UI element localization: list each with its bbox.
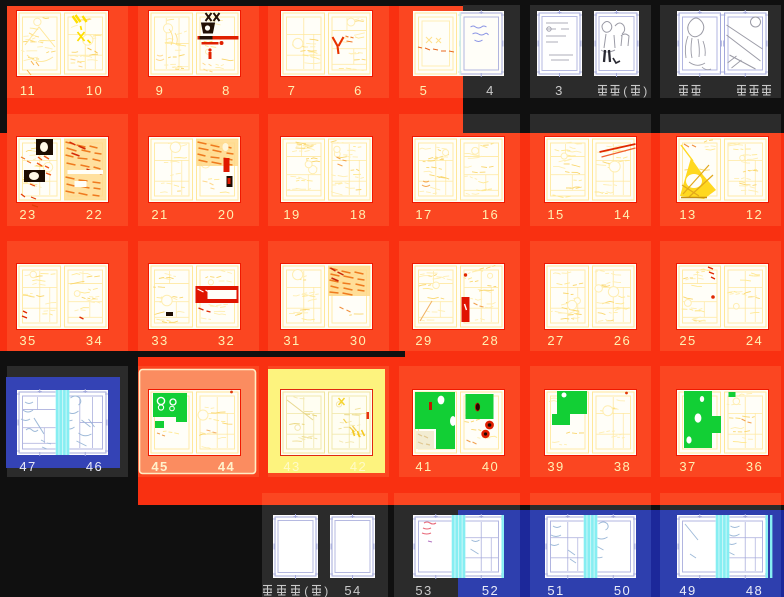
svg-text:6: 6	[354, 83, 363, 98]
svg-text:49: 49	[679, 583, 696, 597]
svg-text:21: 21	[151, 207, 168, 222]
svg-text:47: 47	[19, 459, 36, 474]
svg-text:11: 11	[20, 83, 36, 98]
svg-text:51: 51	[547, 583, 564, 597]
svg-text:50: 50	[614, 583, 631, 597]
svg-text:45: 45	[151, 459, 168, 474]
svg-text:24: 24	[746, 333, 763, 348]
svg-text:44: 44	[218, 459, 235, 474]
svg-text:41: 41	[415, 459, 432, 474]
svg-text:13: 13	[679, 207, 696, 222]
svg-text:7: 7	[288, 83, 297, 98]
svg-text:27: 27	[547, 333, 564, 348]
svg-text:33: 33	[151, 333, 168, 348]
svg-text:19: 19	[283, 207, 300, 222]
svg-text:26: 26	[614, 333, 631, 348]
svg-text:20: 20	[218, 207, 235, 222]
svg-text:38: 38	[614, 459, 631, 474]
svg-text:5: 5	[420, 83, 429, 98]
svg-text:22: 22	[86, 207, 103, 222]
svg-text:): )	[643, 84, 648, 98]
svg-text:28: 28	[482, 333, 499, 348]
svg-text:17: 17	[415, 207, 432, 222]
svg-text:30: 30	[350, 333, 367, 348]
svg-text:48: 48	[746, 583, 763, 597]
svg-text:53: 53	[415, 583, 432, 597]
svg-text:34: 34	[86, 333, 103, 348]
svg-text:37: 37	[679, 459, 696, 474]
svg-text:25: 25	[679, 333, 696, 348]
svg-text:39: 39	[547, 459, 564, 474]
svg-text:32: 32	[218, 333, 235, 348]
svg-text:52: 52	[482, 583, 499, 597]
svg-text:43: 43	[283, 459, 300, 474]
svg-text:42: 42	[350, 459, 367, 474]
svg-text:46: 46	[86, 459, 103, 474]
svg-text:(: (	[304, 584, 309, 597]
svg-text:35: 35	[19, 333, 36, 348]
svg-text:40: 40	[482, 459, 499, 474]
svg-text:29: 29	[415, 333, 432, 348]
svg-text:36: 36	[746, 459, 763, 474]
svg-text:16: 16	[482, 207, 499, 222]
svg-text:54: 54	[344, 583, 361, 597]
svg-text:18: 18	[350, 207, 367, 222]
svg-text:(: (	[623, 84, 628, 98]
svg-text:9: 9	[156, 83, 165, 98]
svg-text:4: 4	[486, 83, 495, 98]
svg-text:8: 8	[222, 83, 231, 98]
svg-text:15: 15	[547, 207, 564, 222]
svg-text:): )	[324, 584, 329, 597]
svg-text:14: 14	[614, 207, 631, 222]
svg-text:31: 31	[283, 333, 300, 348]
svg-text:23: 23	[19, 207, 36, 222]
svg-text:10: 10	[86, 83, 103, 98]
svg-text:12: 12	[746, 207, 763, 222]
svg-text:3: 3	[555, 83, 564, 98]
